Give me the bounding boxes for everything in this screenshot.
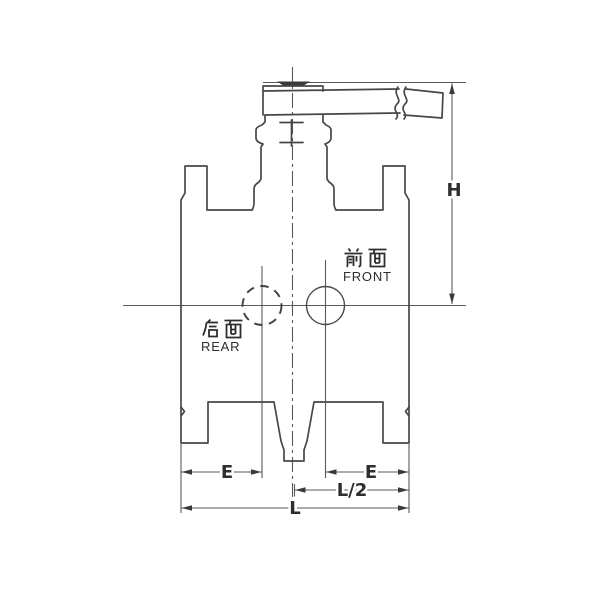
dim-label-l: L	[289, 498, 300, 519]
bonnet-outline-right	[323, 115, 336, 210]
arrowhead-h-top	[449, 84, 455, 95]
arrowhead-l-right	[398, 505, 409, 511]
label-front-en: FRONT	[343, 269, 392, 284]
valve-technical-drawing: H E E L/2 L 前面 FRONT 后面 REAR	[0, 0, 600, 600]
bonnet-outline-left	[252, 115, 265, 210]
valve-body-outline	[181, 166, 409, 461]
handle-break-line-2	[403, 87, 407, 119]
arrowhead-h-bottom	[449, 294, 455, 305]
arrowhead-l-half-left	[295, 487, 306, 493]
handle-lever-bar	[263, 86, 400, 115]
arrowhead-l-left	[182, 505, 193, 511]
stem-packing-gland	[280, 120, 303, 146]
arrowhead-e-left-2	[251, 469, 262, 475]
arrowhead-e-left-1	[182, 469, 193, 475]
dimension-lines	[181, 84, 452, 509]
handle-break-line-1	[395, 87, 399, 119]
dim-label-e-left: E	[221, 462, 233, 483]
drawing-canvas: H E E L/2 L 前面 FRONT 后面 REAR	[0, 0, 600, 600]
handle-grip-end	[404, 89, 443, 118]
arrowhead-l-half-right	[398, 487, 409, 493]
arrowhead-e-right-1	[326, 469, 337, 475]
dim-label-l-half: L/2	[337, 480, 368, 501]
dim-label-h: H	[446, 180, 461, 201]
arrowhead-e-right-2	[398, 469, 409, 475]
dimension-arrowheads	[182, 84, 455, 511]
label-rear-en: REAR	[201, 339, 240, 354]
